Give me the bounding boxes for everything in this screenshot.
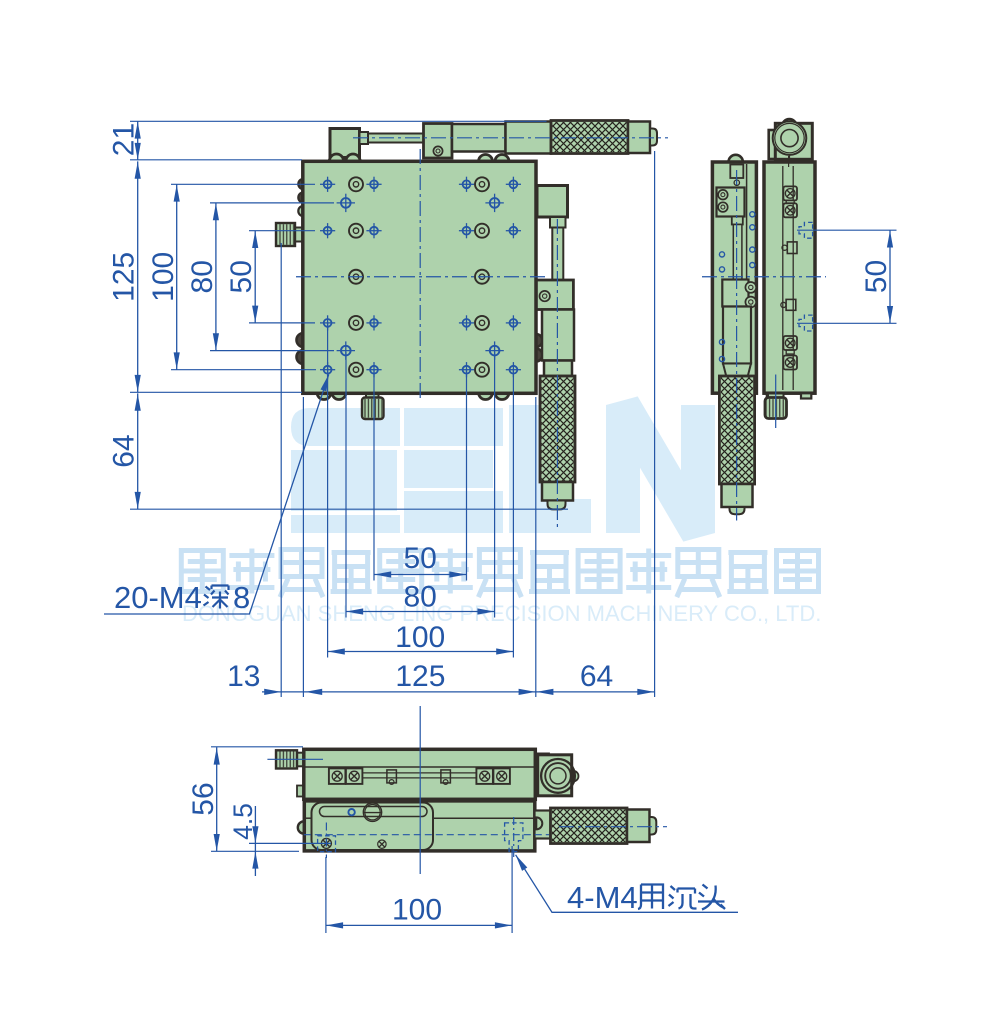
svg-text:4-M4: 4-M4 xyxy=(567,880,638,915)
svg-text:50: 50 xyxy=(860,260,893,293)
svg-text:64: 64 xyxy=(580,660,613,693)
svg-text:64: 64 xyxy=(108,434,141,467)
svg-text:125: 125 xyxy=(108,252,141,302)
svg-text:100: 100 xyxy=(147,252,180,302)
svg-text:80: 80 xyxy=(186,260,219,293)
svg-text:4.5: 4.5 xyxy=(228,803,258,840)
svg-text:20-M4: 20-M4 xyxy=(114,580,202,615)
svg-text:50: 50 xyxy=(225,260,258,293)
svg-text:DONGGUAN SHENG LING PRECISION: DONGGUAN SHENG LING PRECISION MACHINERY … xyxy=(182,601,821,626)
svg-text:21: 21 xyxy=(108,123,141,156)
svg-text:100: 100 xyxy=(392,893,442,926)
svg-text:8: 8 xyxy=(233,580,250,615)
svg-text:50: 50 xyxy=(404,542,437,575)
svg-text:13: 13 xyxy=(227,660,260,693)
svg-text:80: 80 xyxy=(404,581,437,614)
svg-text:100: 100 xyxy=(395,621,445,654)
svg-text:56: 56 xyxy=(187,782,220,815)
svg-text:125: 125 xyxy=(395,660,445,693)
